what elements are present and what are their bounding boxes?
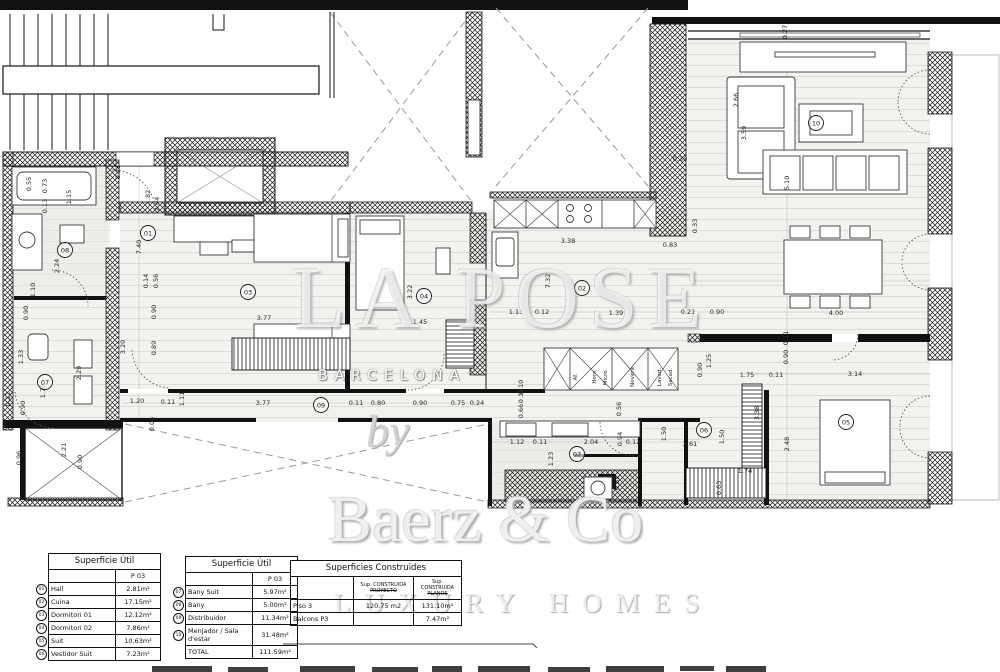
dimension-label: 0.90: [696, 363, 704, 377]
dimension-label: 2.29: [75, 366, 83, 380]
top-wall-band: [0, 0, 688, 10]
room-marker-number: 08: [61, 247, 69, 255]
room-area: 7.86m²: [116, 622, 160, 634]
surface-table-2: Superficie Útil P 0307 Bany Suit 5.97m²0…: [185, 556, 298, 659]
dimension-label: 3.20: [119, 340, 127, 354]
sink: [28, 334, 48, 360]
dimension-label: 1.15: [65, 190, 73, 204]
dimension-label: 1.23: [547, 452, 555, 466]
fixture-label: Af.: [573, 373, 579, 380]
dimension-label: 0.89: [150, 341, 158, 355]
dimension-label: 3.77: [256, 399, 270, 407]
dimension-label: 0.94: [616, 432, 624, 446]
table-row: 04 Dormitori 02 7.86m²: [49, 621, 160, 634]
fixture-label: Horn: [592, 370, 598, 384]
dimension-label: 1.75: [740, 371, 754, 379]
dimension-label: 0.11: [769, 371, 783, 379]
dimension-label: 0.30: [673, 155, 687, 163]
sink: [506, 423, 536, 436]
dimension-label: 0.63: [715, 481, 723, 495]
dimension-label: 1.12: [510, 438, 524, 446]
room-marker-number: 02: [578, 285, 586, 293]
fixture-label: Secad.: [668, 367, 674, 386]
cooktop-burner: [567, 205, 574, 212]
dimension-label: 3.14: [848, 370, 862, 378]
table-row: 07 Bany Suit 5.97m²: [186, 585, 297, 598]
room-area: 17.15m²: [116, 596, 160, 608]
dimension-label: 0.62: [613, 476, 621, 490]
room-name: Bany: [186, 599, 253, 611]
wardrobe: [742, 384, 762, 470]
dimension-label: 1.25: [705, 354, 713, 368]
dimension-label: 2.61: [683, 440, 697, 448]
dimension-label: 0.80: [371, 399, 385, 407]
dimension-label: 1.13: [509, 308, 523, 316]
dimension-label: 0.90: [19, 401, 27, 415]
dimension-label: 2.04: [153, 197, 161, 211]
room-area: 31.48m²: [253, 625, 297, 645]
cut-off-text: [152, 666, 766, 672]
fixture-label: Nevera: [630, 367, 636, 387]
room-area: 7.23m²: [116, 648, 160, 660]
dimension-label: 5.10: [783, 176, 791, 190]
dimension-label: 0.11: [782, 331, 790, 345]
dimension-label: 0.90: [76, 455, 84, 469]
table-row: 09 Distribuidor 11.34m²: [186, 611, 297, 624]
bottom-terrace: [122, 422, 488, 505]
room-number-badge: 08: [173, 600, 184, 611]
dimension-label: 0.96: [15, 451, 23, 465]
table-row: 06 Vestidor Suit 7.23m²: [49, 647, 160, 660]
surface-table-1: Superficie Útil P 0301 Hall 2.81m²02 Cui…: [48, 553, 161, 661]
table-subheader: [186, 573, 253, 585]
dimension-label: 1.50: [660, 427, 668, 441]
dimension-label: 0.73: [41, 179, 49, 193]
desk: [174, 216, 254, 242]
dimension-label: 0.55: [25, 177, 33, 191]
dimension-label: 7.40: [135, 240, 143, 254]
dimension-label: 0.90: [22, 306, 30, 320]
dimension-label: 3.77: [257, 314, 271, 322]
dimension-label: 0.33: [691, 219, 699, 233]
room-name: Cuina: [49, 596, 116, 608]
room-name: Menjador / Sala d'estar: [186, 625, 253, 645]
dimension-label: 3.22: [406, 285, 414, 299]
dimension-label: 3.59: [740, 126, 748, 140]
dimension-label: 2.24: [53, 259, 61, 273]
dimension-label: 0.66: [517, 404, 525, 418]
floor-plan-page: 0.550.730.131.152.241.100.211.822.047.40…: [0, 0, 1000, 672]
value-project: 120.75 m2: [354, 600, 414, 612]
col-header: Sup. CONSTRUIDAPROYECTO: [354, 577, 414, 599]
room-number-badge: 04: [36, 623, 47, 634]
dimension-label: 0.10: [517, 389, 525, 403]
dimension-label: 2.21: [60, 443, 68, 457]
table-plan-col: P 03: [116, 570, 160, 582]
room-name: Dormitori 01: [49, 609, 116, 621]
dimension-label: 7.32: [544, 274, 552, 288]
dimension-label: 0.90: [150, 305, 158, 319]
table-row: 08 Bany 5.00m²: [186, 598, 297, 611]
dimension-label: 1.39: [609, 309, 623, 317]
toilet: [60, 225, 84, 243]
row-name: Balcons P3: [291, 613, 354, 625]
room-number-badge: 03: [36, 610, 47, 621]
room-number-badge: 06: [36, 649, 47, 660]
dimension-label: 0.56: [615, 402, 623, 416]
dimension-label: 0.90: [710, 308, 724, 316]
dimension-label: 0.11: [349, 399, 363, 407]
room-name: Bany Suit: [186, 586, 253, 598]
room-marker-number: 04: [420, 293, 428, 301]
room-marker-number: 07: [41, 379, 49, 387]
dimension-label: 1.10: [29, 283, 37, 297]
dimension-label: 1.74: [738, 467, 752, 475]
room-marker-number: 09: [317, 402, 325, 410]
table-row: 02 Cuina 17.15m²: [49, 595, 160, 608]
kitchen-counter: [494, 200, 656, 228]
balcony-right: [928, 52, 999, 504]
fixture-label: Micro.: [603, 369, 609, 386]
shelf: [436, 248, 450, 274]
table-title: Superficie Útil: [185, 556, 298, 573]
table-row: 10 Menjador / Sala d'estar 31.48m²: [186, 624, 297, 645]
duct-symbol: [213, 14, 224, 30]
room-marker-number: 07: [573, 451, 581, 459]
value-project: [354, 613, 414, 625]
dimension-label: 0.75: [451, 399, 465, 407]
room-marker-number: 01: [144, 230, 152, 238]
dimension-label: 0.56: [152, 274, 160, 288]
tv: [775, 52, 875, 57]
dimension-label: 0.27: [781, 25, 789, 39]
dimension-label: 0.90: [413, 399, 427, 407]
dimension-label: 0.21: [681, 308, 695, 316]
dimension-label: 2.04: [584, 438, 598, 446]
room-area: 12.12m²: [116, 609, 160, 621]
sink: [552, 423, 588, 436]
dimension-label: 0.12: [535, 308, 549, 316]
dimension-label: 0.11: [161, 398, 175, 406]
col-header: Sup. CONSTRUIDAPLANOS: [414, 577, 461, 599]
table-title: Superficies Construides: [290, 560, 462, 577]
room-area: 111.59m²: [253, 646, 297, 658]
dimension-label: 0.24: [470, 399, 484, 407]
room-marker-number: 10: [812, 120, 820, 128]
dimension-label: 2.48: [783, 437, 791, 451]
dimension-label: 1.20: [130, 397, 144, 405]
room-name: Dormitori 02: [49, 622, 116, 634]
dimension-label: 1.11: [178, 392, 186, 406]
dimension-label: 0.14: [142, 274, 150, 288]
dimension-label: 1.33: [17, 350, 25, 364]
balcony-bottom-left: [8, 428, 123, 506]
room-marker-number: 03: [244, 289, 252, 297]
room-area: 10.63m²: [116, 635, 160, 647]
dimension-label: 0.83: [663, 241, 677, 249]
table-row: Piso 3 120.75 m2 131.10m²: [291, 599, 461, 612]
dimension-label: 0.21: [114, 165, 122, 179]
room-number-badge: 05: [36, 636, 47, 647]
built-surface-table: Superficies Construides Sup. CONSTRUIDAP…: [290, 560, 462, 626]
dimension-label: 3.38: [561, 237, 575, 245]
row-name: Piso 3: [291, 600, 354, 612]
room-name: Suit: [49, 635, 116, 647]
wardrobe: [232, 338, 350, 370]
stairwell: [3, 14, 319, 150]
dimension-label: 0.90: [782, 350, 790, 364]
room-number-badge: 01: [36, 584, 47, 595]
table-row: Balcons P3 7.47m²: [291, 612, 461, 625]
dimension-label: 0.11: [533, 438, 547, 446]
dimension-label: 1.50: [718, 430, 726, 444]
table-row: TOTAL 111.59m²: [186, 645, 297, 658]
room-area: 2.81m²: [116, 583, 160, 595]
dimension-label: 4.00: [829, 309, 843, 317]
top-right-wall-band: [652, 17, 1000, 24]
room-name: Vestidor Suit: [49, 648, 116, 660]
dining-table: [784, 240, 882, 294]
dimension-label: 1.45: [413, 318, 427, 326]
wardrobe: [446, 320, 474, 368]
room-number-badge: 07: [173, 587, 184, 598]
dimension-label: 3.38: [753, 406, 761, 420]
table-subheader: [291, 577, 354, 599]
table-row: 03 Dormitori 01 12.12m²: [49, 608, 160, 621]
value-plans: 7.47m²: [414, 613, 461, 625]
fixture-label: Lavad.: [657, 368, 663, 387]
dimension-label: 0.13: [41, 199, 49, 213]
table-row: 05 Suit 10.63m²: [49, 634, 160, 647]
room-name: TOTAL: [186, 646, 253, 658]
wardrobe: [686, 468, 766, 498]
room-marker-number: 05: [842, 419, 850, 427]
dimension-label: 0.12: [626, 438, 640, 446]
table-row: 01 Hall 2.81m²: [49, 582, 160, 595]
room-name: Hall: [49, 583, 116, 595]
dimension-label: 1.82: [144, 190, 152, 204]
value-plans: 131.10m²: [414, 600, 461, 612]
dimension-label: 0.12: [4, 392, 12, 406]
bed: [254, 214, 350, 262]
room-marker-number: 06: [700, 427, 708, 435]
room-name: Distribuidor: [186, 612, 253, 624]
table-subheader: [49, 570, 116, 582]
footer-line: [283, 644, 537, 648]
room-number-badge: 02: [36, 597, 47, 608]
table-title: Superficie Útil: [48, 553, 161, 570]
dimension-label: 0.04: [148, 417, 156, 431]
room-number-badge: 09: [173, 613, 184, 624]
room-number-badge: 10: [173, 630, 184, 641]
dimension-label: 2.66: [732, 93, 740, 107]
